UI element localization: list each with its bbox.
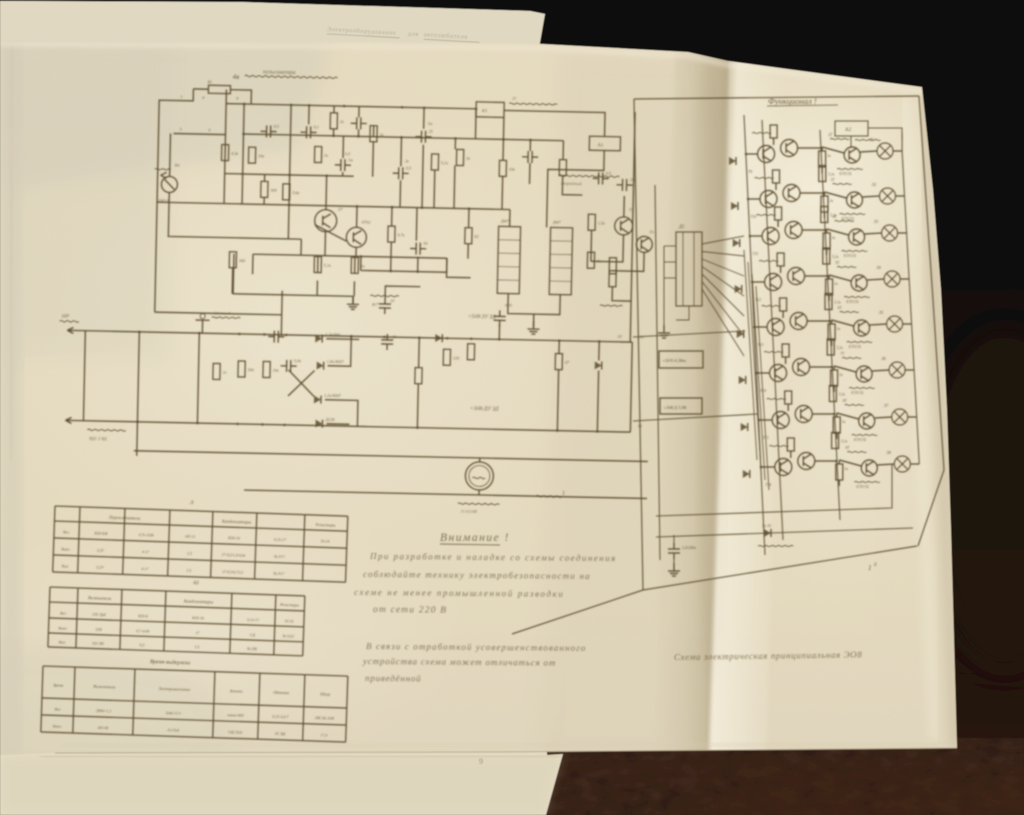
svg-text:от сети 220 В: от сети 220 В bbox=[373, 605, 447, 616]
svg-text:8: 8 bbox=[202, 95, 204, 100]
svg-text:К1: К1 bbox=[481, 108, 487, 113]
svg-text:ШР: ШР bbox=[61, 313, 70, 318]
svg-text:КТ815Б: КТ815Б bbox=[843, 254, 857, 258]
svg-text:2к: 2к bbox=[324, 153, 328, 158]
svg-text:Т11: Т11 bbox=[753, 252, 759, 256]
svg-text:Л4: Л4 bbox=[875, 265, 881, 270]
svg-text:Вых: Вых bbox=[59, 640, 66, 644]
svg-text:СЗ: СЗ bbox=[186, 569, 191, 573]
svg-text:СД: СД bbox=[250, 633, 256, 637]
svg-text:R4: R4 bbox=[174, 163, 180, 168]
svg-text:Время: Время bbox=[53, 683, 63, 687]
svg-text:К50-6Ж: К50-6Ж bbox=[93, 531, 108, 536]
svg-text:R1: R1 bbox=[207, 79, 213, 84]
svg-text:5: 5 bbox=[180, 127, 182, 132]
svg-text:1к: 1к bbox=[842, 420, 846, 424]
svg-text:пульсометра: пульсометра bbox=[263, 69, 296, 76]
svg-text:201 НР: 201 НР bbox=[92, 642, 105, 646]
svg-text:300: 300 bbox=[248, 367, 255, 372]
svg-text:СЗ: СЗ bbox=[195, 645, 200, 649]
svg-text:ДМ7: ДМ7 bbox=[500, 218, 510, 223]
svg-text:Он6-13-1: Он6-13-1 bbox=[166, 711, 181, 716]
svg-text:Л3: Л3 bbox=[873, 219, 879, 224]
svg-text:КТ815Б: КТ815Б bbox=[838, 172, 852, 176]
svg-text:устройства схема может отличат: устройства схема может отличаться от bbox=[362, 656, 556, 668]
svg-text:1м: 1м bbox=[348, 157, 353, 162]
svg-text:соблюдайте технику электробезо: соблюдайте технику электробезопасности н… bbox=[363, 569, 591, 581]
svg-text:1к: 1к bbox=[837, 327, 841, 331]
svg-text:1: 1 bbox=[562, 491, 565, 497]
svg-text:1к: 1к bbox=[834, 282, 838, 286]
svg-text:82: 82 bbox=[474, 234, 478, 239]
svg-text:Т9: Т9 bbox=[748, 170, 752, 174]
svg-text:Д1: Д1 bbox=[678, 225, 685, 230]
svg-text:Вкл: Вкл bbox=[55, 707, 61, 711]
svg-text:Д226: Д226 bbox=[324, 417, 335, 422]
svg-text:Конденсаторы: Конденсаторы bbox=[221, 519, 252, 525]
svg-text:Т10: Т10 bbox=[751, 215, 757, 219]
svg-text:А3: А3 bbox=[192, 581, 199, 586]
svg-text:КТ815Б: КТ815Б bbox=[853, 438, 867, 442]
svg-text:Электромагниты: Электромагниты bbox=[158, 686, 190, 692]
svg-text:А1: А1 bbox=[597, 143, 604, 148]
svg-text:4-17: 4-17 bbox=[142, 550, 150, 554]
svg-text:Л5: Л5 bbox=[878, 310, 884, 315]
svg-text:Л: Л bbox=[189, 501, 194, 506]
svg-text:Л8: Л8 bbox=[885, 450, 891, 455]
svg-text:Л6: Л6 bbox=[880, 356, 886, 361]
svg-text:Т12: Т12 bbox=[755, 298, 761, 302]
svg-text:Вкл: Вкл bbox=[60, 611, 66, 615]
svg-text:1к: 1к bbox=[222, 370, 226, 375]
svg-text:ВД1 3 ВД: ВД1 3 ВД bbox=[89, 436, 108, 441]
svg-text:230 ЛрЕ: 230 ЛрЕ bbox=[92, 612, 107, 616]
svg-text:Обмотка: Обмотка bbox=[273, 690, 289, 696]
svg-text:К50-16: К50-16 bbox=[191, 616, 204, 620]
svg-text:+3дВ ДУ ЗД: +3дВ ДУ ЗД bbox=[470, 405, 499, 413]
svg-text:1к: 1к bbox=[844, 467, 848, 471]
svg-text:Шнур: Шнур bbox=[319, 691, 330, 696]
svg-text:3к: 3к bbox=[466, 156, 470, 161]
svg-text:для: для bbox=[408, 30, 419, 38]
svg-text:К50-6: К50-6 bbox=[137, 614, 148, 618]
svg-text:120: 120 bbox=[453, 355, 460, 360]
svg-text:Время выдержки: Время выдержки bbox=[150, 658, 191, 666]
svg-text:КТ815Б: КТ815Б bbox=[855, 485, 869, 489]
svg-text:П702: П702 bbox=[361, 219, 371, 224]
svg-text:Конденсаторы: Конденсаторы bbox=[183, 598, 214, 604]
svg-text:Э-10/24В: Э-10/24В bbox=[461, 509, 478, 514]
svg-text:10-33: 10-33 bbox=[284, 619, 293, 623]
svg-text:25: 25 bbox=[429, 129, 433, 134]
svg-text:10-24: 10-24 bbox=[320, 539, 329, 543]
svg-text:К50-34: К50-34 bbox=[227, 536, 240, 540]
svg-text:10к: 10к bbox=[509, 167, 515, 172]
svg-text:№ Р17: № Р17 bbox=[272, 572, 285, 576]
svg-text:1к: 1к bbox=[827, 154, 831, 158]
svg-text:6: 6 bbox=[209, 127, 211, 132]
svg-text:300: 300 bbox=[270, 188, 277, 193]
svg-text:2к: 2к bbox=[340, 119, 344, 124]
svg-text:Т13: Т13 bbox=[758, 343, 764, 347]
svg-text:№ Р17: № Р17 bbox=[273, 555, 286, 559]
svg-text:КТ815Б: КТ815Б bbox=[850, 391, 864, 395]
svg-text:10к: 10к bbox=[258, 153, 264, 158]
svg-text:схеме не менее промышленной ра: схеме не менее промышленной разводки bbox=[354, 587, 565, 599]
svg-text:21: 21 bbox=[512, 96, 516, 101]
svg-text:Выкл: Выкл bbox=[58, 626, 67, 630]
svg-text:Кнопки: Кнопки bbox=[229, 688, 243, 693]
svg-text:9: 9 bbox=[236, 96, 238, 101]
svg-text:Внимание !: Внимание ! bbox=[440, 532, 510, 544]
svg-text:Включатели: Включатели bbox=[93, 684, 115, 690]
svg-text:Выкл: Выкл bbox=[61, 547, 70, 551]
svg-text:5м: 5м bbox=[428, 121, 433, 126]
svg-text:Л2: Л2 bbox=[871, 182, 877, 187]
svg-text:Вкл: Вкл bbox=[63, 530, 69, 534]
svg-text:СЗ: СЗ bbox=[187, 552, 192, 556]
svg-text:4в: 4в bbox=[233, 73, 240, 81]
svg-text:401/40: 401/40 bbox=[98, 726, 109, 730]
svg-text:КТ815Б: КТ815Б bbox=[848, 345, 862, 349]
svg-text:Т3: Т3 bbox=[649, 229, 653, 234]
svg-text:КТ815Б: КТ815Б bbox=[845, 300, 859, 304]
svg-text:Вых: Вых bbox=[61, 564, 68, 568]
svg-text:Функционал !: Функционал ! bbox=[768, 96, 817, 106]
svg-text:А2: А2 bbox=[845, 128, 852, 133]
svg-text:32В: 32В bbox=[95, 628, 102, 632]
svg-text:Резисторы: Резисторы bbox=[315, 522, 336, 528]
svg-text:№ ПК: № ПК bbox=[246, 647, 258, 651]
svg-text:1к: 1к bbox=[839, 373, 843, 377]
svg-text:10к: 10к bbox=[273, 368, 279, 373]
svg-text:2к: 2к bbox=[405, 158, 409, 163]
svg-text:1: 1 bbox=[868, 564, 872, 572]
svg-text:R17: R17 bbox=[371, 302, 380, 307]
svg-text:АП-13: АП-13 bbox=[184, 535, 195, 539]
svg-text:4-17: 4-17 bbox=[141, 567, 149, 571]
svg-text:5а 16: 5а 16 bbox=[762, 523, 771, 528]
svg-text:Включатели: Включатели bbox=[88, 595, 112, 601]
svg-text:В связи с отработкой усовершен: В связи с отработкой усовершенствованног… bbox=[366, 641, 586, 653]
svg-text:+5дВ ЗУ ЗД: +5дВ ЗУ ЗД bbox=[468, 313, 497, 321]
svg-text:ДМ7: ДМ7 bbox=[552, 219, 562, 224]
svg-text:накоп 600: накоп 600 bbox=[227, 713, 243, 718]
svg-text:Резисторы: Резисторы bbox=[279, 602, 299, 608]
svg-text:Л7: Л7 bbox=[883, 403, 890, 408]
svg-text:2ВС1К-3Об: 2ВС1К-3Об bbox=[315, 716, 335, 721]
svg-text:приведённой: приведённой bbox=[365, 673, 422, 683]
svg-text:160: 160 bbox=[239, 258, 246, 263]
svg-text:Выкл: Выкл bbox=[53, 724, 62, 728]
svg-text:Т2: Т2 bbox=[629, 207, 633, 212]
svg-text:1к: 1к bbox=[832, 236, 836, 240]
svg-text:1к: 1к bbox=[830, 199, 834, 203]
